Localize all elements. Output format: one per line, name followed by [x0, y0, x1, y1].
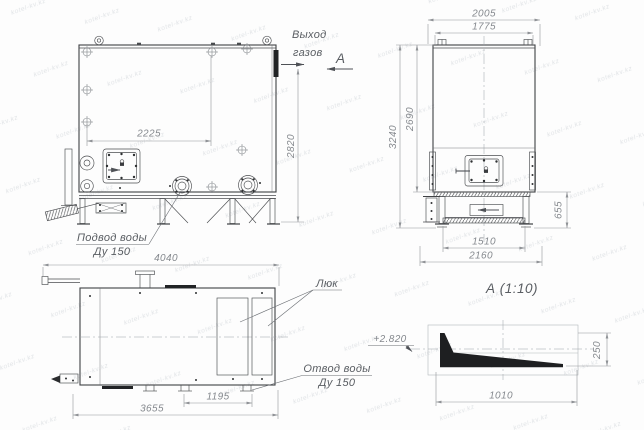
dim-1775: 1775 — [472, 22, 496, 33]
water-inlet-label-line2: Ду 150 — [92, 246, 131, 258]
dim-655: 655 — [554, 201, 565, 219]
dim-2690: 2690 — [405, 107, 416, 132]
hatch-label: Люк — [315, 278, 338, 290]
dim-250: 250 — [592, 341, 603, 360]
boiler-drawing: kotel-kv.kz kotel-kv.kz — [0, 0, 644, 430]
dim-4040: 4040 — [154, 253, 178, 264]
level-mark: +2.820 — [373, 334, 406, 345]
dim-1195: 1195 — [206, 392, 229, 403]
gas-outlet-flange-top — [165, 285, 196, 288]
dim-2160: 2160 — [468, 251, 493, 262]
dim-2005: 2005 — [471, 9, 496, 20]
dim-3655: 3655 — [140, 404, 164, 415]
flange-strip-bottom — [102, 386, 133, 389]
gas-outlet-label-line1: Выход — [292, 29, 327, 41]
water-inlet-label-line1: Подвод воды — [77, 232, 147, 244]
detail-title: А (1:10) — [485, 281, 538, 296]
dim-2225: 2225 — [136, 129, 161, 140]
dim-3240: 3240 — [388, 125, 399, 149]
gas-outlet-label-line2: газов — [293, 47, 323, 59]
technical-drawing-page: kotel-kv.kz kotel-kv.kz — [0, 0, 644, 430]
dim-1010: 1010 — [489, 391, 513, 402]
dim-1510: 1510 — [472, 237, 496, 248]
water-outlet-label-line1: Отвод воды — [303, 363, 370, 375]
gas-outlet-flange — [274, 50, 279, 77]
view-a-label: А — [335, 51, 346, 66]
water-outlet-label-line2: Ду 150 — [317, 377, 356, 389]
dim-2820: 2820 — [286, 134, 297, 159]
